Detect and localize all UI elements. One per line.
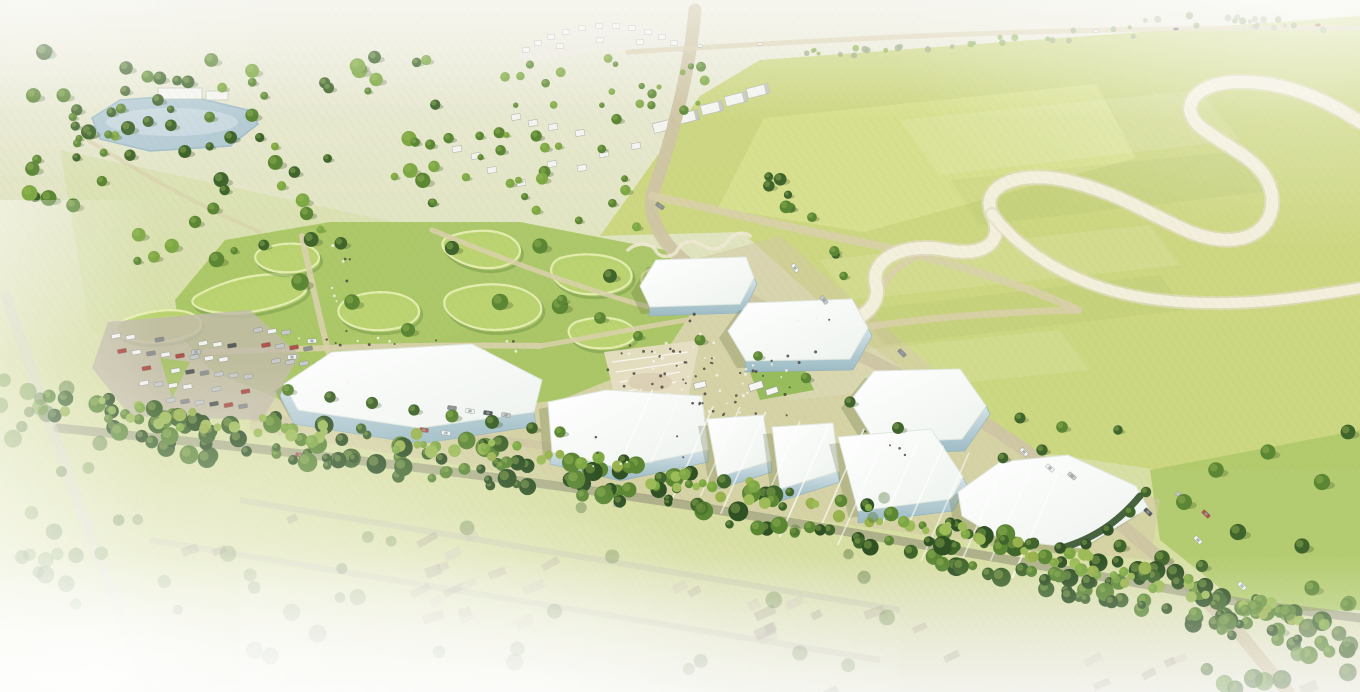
tree-canopy-highlight <box>1231 525 1239 533</box>
tree-canopy-highlight <box>598 146 602 150</box>
tree-canopy-highlight <box>522 194 526 198</box>
tree-canopy-highlight <box>935 538 945 548</box>
tree-canopy-highlight <box>1262 446 1270 454</box>
tree-canopy-highlight <box>532 131 538 137</box>
tree-canopy-highlight <box>463 174 467 178</box>
tree-canopy-highlight <box>429 162 435 168</box>
tree-canopy-highlight <box>1178 496 1186 504</box>
tree-canopy-highlight <box>765 173 769 177</box>
tree-canopy-highlight <box>404 165 411 172</box>
person <box>904 454 906 456</box>
tree-canopy-highlight <box>1142 488 1147 493</box>
tree-canopy-highlight <box>1126 508 1132 514</box>
tree-canopy-highlight <box>998 526 1008 536</box>
haze-top-right <box>840 0 1360 280</box>
tree-canopy-highlight <box>941 525 947 531</box>
tree-canopy-highlight <box>976 535 981 540</box>
tree-canopy-highlight <box>1037 445 1043 451</box>
tree-canopy-highlight <box>1103 525 1109 531</box>
tree-canopy-highlight <box>476 132 480 136</box>
tree-canopy-highlight <box>305 234 312 241</box>
tree-canopy-highlight <box>923 528 927 532</box>
tree-canopy-highlight <box>504 133 507 136</box>
tree-canopy-highlight <box>1210 464 1218 472</box>
person <box>344 258 347 261</box>
tree-canopy-highlight <box>444 134 449 139</box>
tree-canopy-highlight <box>999 454 1004 459</box>
tree-canopy-highlight <box>210 253 218 261</box>
person <box>349 258 351 260</box>
tree-canopy-highlight <box>893 423 899 429</box>
tree-canopy-highlight <box>1026 540 1032 546</box>
tree-canopy-highlight <box>905 546 912 553</box>
tree-canopy-highlight <box>336 238 342 244</box>
tree-canopy-highlight <box>537 174 543 180</box>
tree-canopy-highlight <box>952 542 957 547</box>
tree-canopy-highlight <box>1115 541 1121 547</box>
tree-canopy-highlight <box>1016 414 1022 420</box>
tree-canopy-highlight <box>540 167 546 173</box>
tree-canopy-highlight <box>478 155 481 158</box>
tree-canopy-highlight <box>830 247 835 252</box>
person <box>950 423 952 425</box>
tree-canopy-highlight <box>633 223 638 228</box>
tree-canopy-highlight <box>403 133 411 141</box>
tree-canopy-highlight <box>808 213 813 218</box>
haze-top-left <box>0 0 340 220</box>
tree-canopy-highlight <box>391 174 395 178</box>
tree-canopy-highlight <box>1014 538 1019 543</box>
tree-canopy-highlight <box>496 146 501 151</box>
tree-canopy-highlight <box>495 128 501 134</box>
tree-canopy-highlight <box>609 200 613 204</box>
tree-canopy-highlight <box>166 240 173 247</box>
tree-canopy-highlight <box>541 144 546 149</box>
tree-canopy-highlight <box>1342 426 1349 433</box>
tree-canopy-highlight <box>1055 543 1061 549</box>
person <box>331 244 334 247</box>
tree-canopy-highlight <box>533 207 538 212</box>
tree-canopy-highlight <box>576 217 580 221</box>
tree-canopy-highlight <box>1082 540 1088 546</box>
tree-canopy-highlight <box>1065 549 1071 555</box>
tree-canopy-highlight <box>446 242 453 249</box>
tree-canopy-highlight <box>1000 536 1005 541</box>
tree-canopy-highlight <box>1114 426 1119 431</box>
tree-canopy-highlight <box>1021 548 1025 552</box>
tree-canopy-highlight <box>259 241 264 246</box>
aerial-masterplan-rendering <box>0 0 1360 692</box>
tree-canopy-highlight <box>604 270 611 277</box>
tree-canopy-highlight <box>925 537 930 542</box>
tree-canopy-highlight <box>621 186 626 191</box>
tree-canopy-highlight <box>556 143 560 147</box>
tree-canopy-highlight <box>1315 475 1323 483</box>
tree-canopy-highlight <box>231 248 235 252</box>
tree-canopy-highlight <box>764 181 770 187</box>
tree-canopy-highlight <box>959 523 964 528</box>
haze-bottom-edge <box>0 556 1360 692</box>
person <box>909 458 911 460</box>
tree-canopy-highlight <box>781 202 787 208</box>
tree-canopy-highlight <box>411 139 416 144</box>
tree-canopy-highlight <box>534 240 542 248</box>
tree-canopy-highlight <box>919 522 923 526</box>
tree-canopy-highlight <box>775 174 781 180</box>
tree-canopy-highlight <box>785 191 789 195</box>
tree-canopy-highlight <box>1057 422 1063 428</box>
person <box>828 319 830 321</box>
rendering-canvas <box>0 0 1360 692</box>
tree-canopy-highlight <box>622 176 625 179</box>
tree-canopy-highlight <box>516 177 520 181</box>
tree-canopy-highlight <box>426 140 431 145</box>
tree-canopy-highlight <box>1296 540 1304 548</box>
tree-canopy-highlight <box>317 226 321 230</box>
tree-canopy-highlight <box>507 180 512 185</box>
tree-canopy-highlight <box>430 199 434 203</box>
person <box>342 260 345 263</box>
person <box>902 443 904 445</box>
tree-canopy-highlight <box>846 398 852 404</box>
